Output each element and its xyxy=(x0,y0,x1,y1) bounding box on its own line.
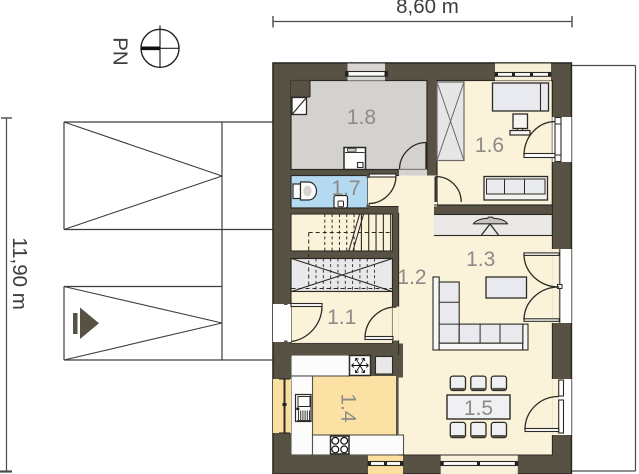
svg-text:1.3: 1.3 xyxy=(466,248,495,271)
svg-text:1.4: 1.4 xyxy=(337,393,360,423)
svg-text:1.2: 1.2 xyxy=(397,266,426,289)
svg-text:1.7: 1.7 xyxy=(331,177,360,200)
svg-text:1.5: 1.5 xyxy=(464,397,493,420)
svg-text:1.6: 1.6 xyxy=(475,134,504,157)
svg-text:PN: PN xyxy=(109,37,132,65)
svg-text:8,60 m: 8,60 m xyxy=(396,0,459,18)
svg-text:11,90 m: 11,90 m xyxy=(8,237,31,310)
svg-text:1.1: 1.1 xyxy=(327,306,356,329)
svg-text:1.8: 1.8 xyxy=(347,106,376,129)
